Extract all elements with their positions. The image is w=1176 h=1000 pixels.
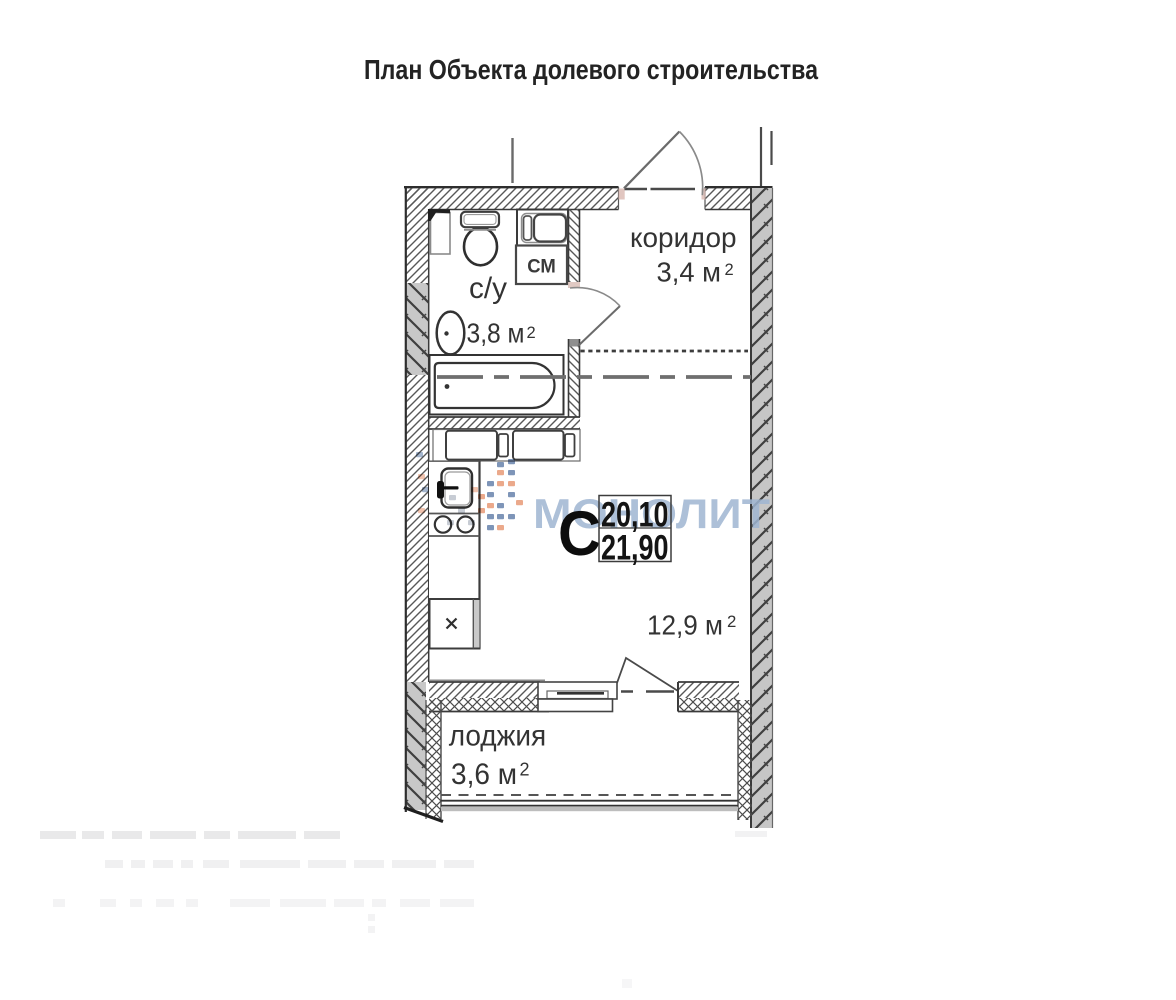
svg-text:3,4 м: 3,4 м — [657, 257, 722, 288]
svg-text:С: С — [558, 499, 601, 569]
svg-text:2: 2 — [527, 324, 536, 342]
svg-text:12,9 м: 12,9 м — [647, 610, 723, 641]
svg-text:2: 2 — [727, 612, 736, 631]
svg-text:2: 2 — [520, 760, 530, 780]
svg-text:СМ: СМ — [527, 256, 556, 278]
svg-text:3,6 м: 3,6 м — [451, 758, 517, 791]
svg-text:лоджия: лоджия — [449, 720, 547, 753]
svg-text:3,8 м: 3,8 м — [467, 318, 525, 349]
svg-text:коридор: коридор — [630, 222, 737, 253]
svg-text:с/у: с/у — [469, 272, 507, 305]
svg-text:План Объекта долевого строител: План Объекта долевого строительства — [364, 54, 819, 85]
svg-text:2: 2 — [725, 261, 734, 279]
svg-text:21,90: 21,90 — [601, 528, 669, 568]
